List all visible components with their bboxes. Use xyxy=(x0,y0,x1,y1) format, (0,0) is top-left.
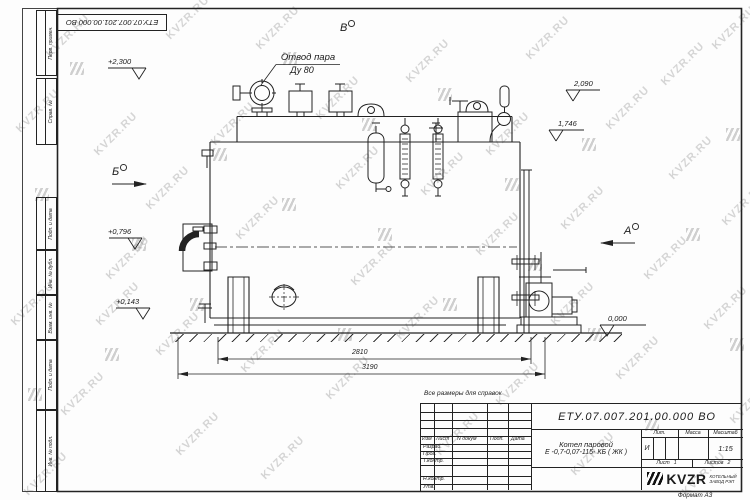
row-prov: Пров. xyxy=(423,451,437,458)
col-izm: Изм xyxy=(422,436,432,443)
kvzr-spring-icon xyxy=(647,472,663,485)
lifting-lugs xyxy=(358,101,488,116)
row-razrab: Разраб. xyxy=(423,444,442,451)
product-line1: Котел паровой xyxy=(559,440,613,449)
elevation-0796: +0,796 xyxy=(108,227,131,236)
view-label-a: А xyxy=(624,223,639,237)
steam-outlet-dn: Ду 80 xyxy=(272,65,332,75)
rotate-symbol xyxy=(632,223,639,230)
col-list: Лист xyxy=(436,436,449,443)
dim-3190: 3190 xyxy=(362,364,378,371)
sheet-cell: Лист 1 xyxy=(641,459,692,467)
company-cell: KVZR КОТЕЛЬНЫЙ ЗАВОД РЭП xyxy=(641,467,743,490)
rotate-symbol xyxy=(348,20,355,27)
row-utv: Утв. xyxy=(423,484,435,491)
view-label-v: В xyxy=(340,20,355,34)
sheet-value: 1 xyxy=(674,460,677,467)
doc-number-cell: ЕТУ.07.007.201.00.000 ВО xyxy=(531,404,743,429)
burner xyxy=(182,224,217,271)
lit-label: Лит. xyxy=(641,429,678,437)
format-label: Формат А3 xyxy=(645,492,745,499)
row-tkontr: Т.контр. xyxy=(423,458,444,465)
margin-box-perv-primen: Перв. примен. xyxy=(36,10,57,76)
boiler-body xyxy=(210,117,520,334)
ground-hatch xyxy=(170,334,622,342)
massa-label: Масса xyxy=(678,429,708,437)
margin-box-sprav-no: Справ. № xyxy=(36,78,57,145)
title-block: Изм Лист N докум Подп. Дата Разраб. Пров… xyxy=(420,403,742,492)
company-name: KVZR xyxy=(666,471,706,487)
safety-valves xyxy=(289,84,352,116)
drawing-sheet: KVZR.RUKVZR.RUKVZR.RUKVZR.RUKVZR.RUKVZR.… xyxy=(0,0,750,500)
top-doc-number: ЕТУ.07.007.201.00.000 ВО xyxy=(66,18,158,27)
doc-number: ЕТУ.07.007.201.00.000 ВО xyxy=(558,411,716,423)
company-subtitle: КОТЕЛЬНЫЙ ЗАВОД РЭП xyxy=(710,474,737,484)
sheets-value: 2 xyxy=(728,460,731,467)
elevation-1746: 1,746 xyxy=(558,119,577,128)
sheets-cell: Листов 2 xyxy=(692,459,743,467)
left-fittings xyxy=(198,150,213,323)
pressure-gauge xyxy=(490,86,511,142)
elevation-2090: 2,090 xyxy=(574,79,593,88)
reference-note: Все размеры для справок xyxy=(424,390,502,397)
rotate-symbol xyxy=(120,164,127,171)
company-sub2: ЗАВОД РЭП xyxy=(710,479,737,484)
margin-box-vzam-inv: Взам. инв. № xyxy=(36,295,57,340)
margin-box-inv-dubl: Инв. № дубл. xyxy=(36,250,57,295)
elevation-marks xyxy=(108,68,646,336)
steam-outlet-label: Отвод пара xyxy=(272,52,344,63)
sheets-label: Листов xyxy=(705,460,724,467)
elevation-2300: +2,300 xyxy=(108,57,131,66)
elevation-0143: +0,143 xyxy=(116,297,139,306)
margin-box-podp-data-1: Подп. и дата xyxy=(36,197,57,250)
lit-value: И xyxy=(641,437,653,459)
margin-box-podp-data-2: Подп. и дата xyxy=(36,340,57,410)
col-podp: Подп. xyxy=(490,436,504,443)
product-line2: Е -0,7-0,07-115- КБ ( ЖК ) xyxy=(545,449,627,456)
view-label-b: Б xyxy=(112,164,127,178)
top-doc-number-box: ЕТУ.07.007.201.00.000 ВО xyxy=(57,14,167,31)
col-data: Дата xyxy=(511,436,525,443)
sheet-label: Лист xyxy=(656,460,669,467)
product-name-cell: Котел паровой Е -0,7-0,07-115- КБ ( ЖК ) xyxy=(531,429,641,467)
row-nkontr: Н.контр. xyxy=(423,476,445,483)
dimension-lines xyxy=(178,337,545,379)
dim-2810: 2810 xyxy=(352,349,368,356)
scale-label: Масштаб xyxy=(708,429,743,437)
scale-value: 1:15 xyxy=(708,437,743,459)
elevation-0000: 0,000 xyxy=(608,314,627,323)
level-gauges xyxy=(368,118,443,196)
manhole xyxy=(269,284,299,310)
col-ndoc: N докум xyxy=(457,436,477,443)
margin-box-inv-podl: Инв. № подл. xyxy=(36,410,57,492)
